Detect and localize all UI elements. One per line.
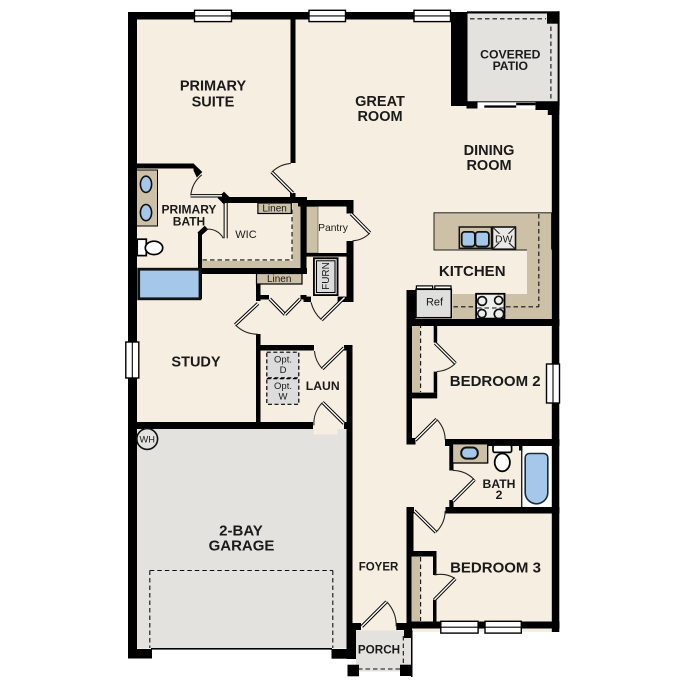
svg-text:KITCHEN: KITCHEN — [439, 263, 506, 280]
svg-text:D: D — [280, 365, 287, 376]
svg-text:FURN: FURN — [321, 262, 332, 290]
svg-text:WH: WH — [139, 434, 155, 444]
svg-text:DW: DW — [495, 233, 513, 245]
svg-text:BEDROOM 3: BEDROOM 3 — [450, 560, 541, 577]
svg-text:W: W — [279, 392, 288, 403]
svg-text:Ref: Ref — [426, 297, 444, 309]
svg-text:FOYER: FOYER — [359, 562, 399, 574]
svg-text:Linen: Linen — [267, 274, 291, 285]
svg-text:STUDY: STUDY — [171, 355, 220, 371]
svg-text:Linen: Linen — [262, 204, 286, 215]
svg-text:GREAT: GREAT — [355, 94, 405, 110]
svg-text:Opt.: Opt. — [274, 355, 292, 366]
svg-text:Pantry: Pantry — [318, 223, 349, 234]
svg-text:SUITE: SUITE — [192, 94, 235, 110]
svg-text:2: 2 — [496, 488, 503, 502]
svg-text:LAUN: LAUN — [306, 379, 340, 393]
svg-text:PATIO: PATIO — [493, 59, 528, 73]
svg-text:ROOM: ROOM — [357, 109, 402, 125]
svg-text:DINING: DINING — [464, 143, 515, 159]
svg-text:GARAGE: GARAGE — [209, 538, 275, 555]
svg-text:ROOM: ROOM — [466, 158, 511, 174]
svg-text:Opt.: Opt. — [274, 381, 292, 392]
svg-text:WIC: WIC — [235, 229, 256, 241]
svg-text:BEDROOM 2: BEDROOM 2 — [450, 373, 541, 390]
svg-text:BATH: BATH — [173, 215, 205, 229]
svg-text:PRIMARY: PRIMARY — [180, 78, 247, 94]
svg-text:PORCH: PORCH — [358, 644, 400, 657]
